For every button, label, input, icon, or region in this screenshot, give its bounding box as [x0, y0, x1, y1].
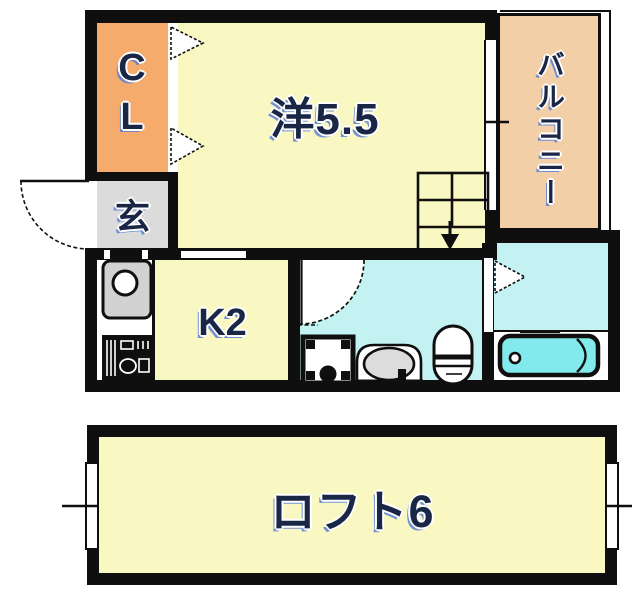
- kitchen-label: K2: [160, 298, 285, 348]
- closet-label: CL: [112, 38, 152, 148]
- toilet-icon: [434, 326, 472, 384]
- entrance-label: 玄: [97, 183, 168, 245]
- bathroom-door-icon: [495, 261, 525, 293]
- entry-door-swing-icon: [20, 181, 89, 249]
- staircase-down-icon: [418, 173, 488, 250]
- washing-machine-pan-icon: [303, 337, 353, 383]
- washbasin-icon: [355, 345, 423, 381]
- washroom-door-swing-icon: [298, 260, 364, 325]
- closet-folding-doors-icon: [171, 27, 203, 164]
- floor-plan: CL 洋5.5 玄 K2 バルコニー ロフト6: [0, 0, 640, 593]
- gas-stove-icon: [102, 335, 153, 381]
- bathtub-icon: [500, 332, 598, 375]
- kitchen-sink-icon: [103, 261, 151, 318]
- loft-label: ロフト6: [220, 478, 485, 536]
- balcony-label: バルコニー: [528, 30, 570, 230]
- western-room-label: 洋5.5: [240, 85, 410, 145]
